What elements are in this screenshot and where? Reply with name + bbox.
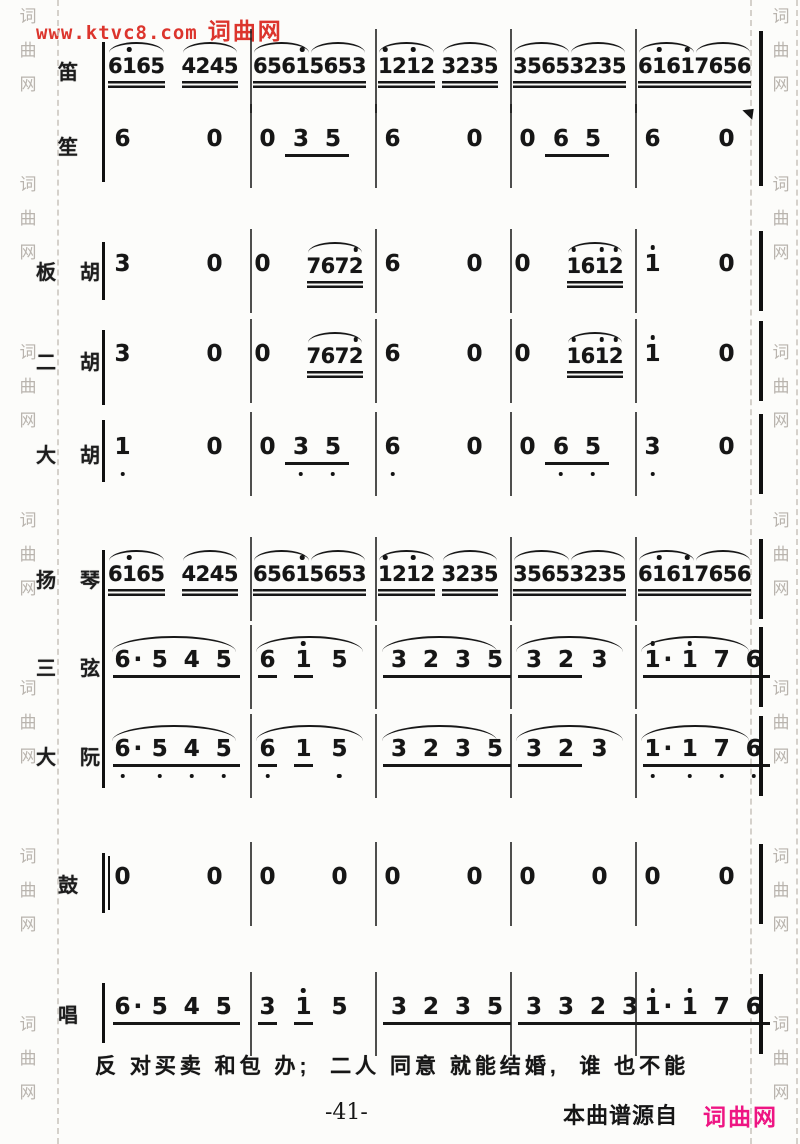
barline	[635, 229, 637, 313]
note-group: 5653	[310, 548, 367, 596]
score-row: 100356006530	[105, 423, 762, 485]
arc-spacer	[205, 423, 224, 434]
instrument-label-char: 琴	[80, 564, 100, 593]
note-digit: 5	[330, 994, 349, 1021]
measure: 00	[375, 853, 510, 915]
note-group: 35	[285, 423, 349, 465]
system-bracket-inner	[108, 856, 110, 910]
note-group: 0	[717, 423, 736, 461]
instrument-label: 唱	[36, 999, 100, 1028]
note-group: 0	[253, 330, 272, 368]
note-digit: 6	[281, 53, 295, 80]
note-digit: 0	[590, 864, 609, 891]
beam-underline	[383, 1022, 447, 1025]
system-bracket	[102, 550, 105, 788]
low-octave-dot	[688, 774, 693, 779]
note-digit: 1	[652, 53, 666, 80]
note-digit: 3	[590, 736, 609, 763]
note-digit: 3	[447, 736, 479, 763]
barline	[510, 625, 512, 709]
note-digit: 2	[584, 53, 598, 80]
slur-arc	[109, 550, 164, 561]
measure: 10	[635, 240, 762, 302]
instrument-label-char: 板	[36, 256, 56, 285]
cursor-artifact-icon	[741, 107, 753, 119]
note-group: 0	[643, 853, 662, 891]
beam-underline	[383, 675, 447, 678]
note-digit: 5	[144, 994, 176, 1021]
note-group: 3	[113, 240, 132, 278]
instrument-label: 笛	[36, 56, 100, 85]
note-group: 3565	[513, 548, 570, 596]
side-watermark-text: 词曲网	[15, 0, 41, 102]
beam-underline	[144, 675, 240, 678]
end-barline	[759, 106, 763, 186]
arc-spacer	[113, 115, 132, 126]
beam-underline	[113, 1022, 144, 1025]
high-octave-dot	[650, 641, 655, 646]
side-watermark-text: 词曲网	[15, 168, 41, 270]
barline	[635, 842, 637, 926]
note-digit: 2	[550, 647, 582, 674]
high-octave-dot	[614, 247, 619, 252]
arc-spacer	[518, 423, 537, 434]
note-digit: 3	[470, 561, 484, 588]
note-digit: 3	[285, 434, 317, 461]
note-group: 0	[717, 115, 736, 153]
measure: 035	[250, 423, 375, 485]
measure: 10	[105, 423, 250, 485]
arc-spacer	[383, 983, 447, 994]
score-row: 3007672600161210	[105, 240, 762, 302]
arc-spacer	[383, 423, 402, 434]
measure: 3235	[375, 636, 510, 698]
note-group: 3323	[518, 983, 646, 1025]
arc-spacer	[113, 983, 144, 994]
note-digit: 7	[307, 253, 321, 280]
instrument-label-char: 扬	[36, 564, 56, 593]
end-barline	[759, 321, 763, 401]
low-octave-dot	[265, 774, 270, 779]
note-digit: 5	[527, 561, 541, 588]
slur-arc	[311, 550, 366, 561]
note-group: 1	[643, 240, 662, 278]
beam-underline	[442, 589, 499, 596]
note-digit: 3	[447, 647, 479, 674]
note-digit: 6	[581, 343, 595, 370]
system-bracket	[102, 853, 105, 913]
note-digit: 1	[294, 647, 313, 674]
arc-spacer	[717, 115, 736, 126]
measure: 07672	[250, 240, 375, 302]
note-digit: 7	[695, 53, 709, 80]
note-group: 1	[113, 423, 132, 461]
high-octave-dot	[411, 47, 416, 52]
beam-underline	[518, 1022, 646, 1025]
note-digit: 5	[612, 561, 626, 588]
note-digit: 1	[595, 253, 609, 280]
measure: 3235	[375, 725, 510, 787]
note-digit: 5	[208, 994, 240, 1021]
barline	[250, 229, 252, 313]
measure: 61654245	[105, 548, 250, 610]
measure: 60	[375, 423, 510, 485]
low-octave-dot	[190, 774, 195, 779]
measure: 35653235	[510, 548, 635, 610]
arc-spacer	[590, 853, 609, 864]
note-digit: 4	[210, 53, 224, 80]
note-digit: 4	[176, 736, 208, 763]
note-digit: 1	[567, 343, 581, 370]
measure: 07672	[250, 330, 375, 392]
barline	[250, 714, 252, 798]
note-digit: 2	[420, 561, 434, 588]
note-digit: 5	[484, 561, 498, 588]
high-octave-dot	[650, 335, 655, 340]
beam-underline	[108, 589, 165, 596]
note-group: 65	[545, 423, 609, 465]
beam-underline	[643, 675, 674, 678]
note-digit: 6	[113, 994, 132, 1021]
note-digit: 7	[706, 736, 738, 763]
note-group: 1	[643, 330, 662, 368]
note-digit: 0	[717, 126, 736, 153]
note-group: 0	[513, 240, 532, 278]
note-digit: 3	[570, 53, 584, 80]
beam-underline	[307, 281, 364, 288]
side-watermark-text: 词曲网	[768, 672, 794, 774]
end-barline	[759, 844, 763, 924]
measure: 30	[105, 240, 250, 302]
note-digit: 5	[612, 53, 626, 80]
measure: 065	[510, 423, 635, 485]
note-digit: 5	[310, 561, 324, 588]
note-digit: ·	[662, 736, 674, 763]
note-digit: 1	[294, 736, 313, 763]
end-barline	[759, 414, 763, 494]
note-group: 0	[465, 240, 484, 278]
note-digit: 6	[666, 53, 680, 80]
note-digit: 2	[349, 253, 363, 280]
end-barline	[759, 539, 763, 619]
note-group: 6	[383, 240, 402, 278]
arc-spacer	[258, 853, 277, 864]
measure: 1·176	[635, 636, 762, 698]
note-digit: 0	[113, 864, 132, 891]
arc-spacer	[513, 330, 532, 341]
note-group: 6	[643, 115, 662, 153]
slur-arc	[311, 42, 366, 53]
note-digit: 2	[196, 561, 210, 588]
beam-underline	[307, 371, 364, 378]
note-digit: 6	[638, 561, 652, 588]
note-digit: ·	[132, 994, 144, 1021]
slur-arc	[514, 550, 569, 561]
note-group: 0	[205, 240, 224, 278]
side-watermark-text: 词曲网	[768, 168, 794, 270]
low-octave-dot	[158, 774, 163, 779]
arc-spacer	[205, 853, 224, 864]
measure: 61617656	[635, 548, 762, 610]
high-octave-dot	[688, 988, 693, 993]
barline	[635, 537, 637, 621]
note-group: 0	[205, 330, 224, 368]
note-digit: 0	[205, 251, 224, 278]
arc-spacer	[465, 330, 484, 341]
note-digit: 3	[442, 53, 456, 80]
low-octave-dot	[390, 472, 395, 477]
note-group: 4245	[182, 548, 239, 596]
note-group: 0	[518, 115, 537, 153]
low-octave-dot	[559, 472, 564, 477]
note-group: 0	[513, 330, 532, 368]
beam-underline	[643, 764, 674, 767]
barline	[250, 842, 252, 926]
beam-underline	[258, 675, 277, 678]
note-digit: 7	[335, 253, 349, 280]
note-digit: 0	[717, 434, 736, 461]
barline	[510, 229, 512, 313]
note-digit: 4	[182, 561, 196, 588]
measure: 00	[250, 853, 375, 915]
high-octave-dot	[301, 641, 306, 646]
arc-spacer	[113, 853, 132, 864]
note-digit: ·	[132, 647, 144, 674]
beam-underline	[182, 81, 239, 88]
measure: 00	[105, 853, 250, 915]
beam-underline	[570, 81, 627, 88]
note-digit: 1	[295, 53, 309, 80]
source-attribution-label: 本曲谱源自	[563, 1098, 678, 1130]
note-digit: 6	[737, 53, 751, 80]
slur-arc	[696, 550, 751, 561]
beam-underline	[113, 764, 144, 767]
instrument-label-char: 三	[36, 652, 56, 681]
high-octave-dot	[657, 555, 662, 560]
note-digit: 6	[113, 736, 132, 763]
note-group: 35	[285, 115, 349, 157]
instrument-label-char: 大	[36, 741, 56, 770]
arc-spacer	[518, 853, 537, 864]
note-digit: 0	[253, 341, 272, 368]
note-group: 0	[205, 853, 224, 891]
note-digit: 0	[205, 434, 224, 461]
note-digit: 2	[196, 53, 210, 80]
slur-arc	[696, 42, 751, 53]
note-group: 0	[330, 853, 349, 891]
note-group: 1612	[567, 240, 624, 288]
arc-spacer	[144, 983, 240, 994]
note-digit: 2	[582, 994, 614, 1021]
barline	[635, 29, 637, 113]
note-digit: 3	[285, 126, 317, 153]
low-octave-dot	[331, 472, 336, 477]
high-octave-dot	[383, 555, 388, 560]
measure: 60	[635, 115, 762, 177]
high-octave-dot	[688, 641, 693, 646]
note-group: 3	[258, 983, 277, 1025]
note-digit: 1	[595, 343, 609, 370]
note-digit: 6	[709, 561, 723, 588]
note-digit: 6	[738, 994, 770, 1021]
measure: 615	[250, 725, 375, 787]
measure: 6·545	[105, 636, 250, 698]
note-digit: 0	[465, 126, 484, 153]
measure: 615	[250, 636, 375, 698]
slur-arc	[514, 42, 569, 53]
beam-underline	[294, 764, 313, 767]
note-group: 6165	[108, 548, 165, 596]
note-digit: 2	[415, 736, 447, 763]
barline	[375, 537, 377, 621]
note-digit: 1	[294, 994, 313, 1021]
note-digit: 4	[176, 647, 208, 674]
note-digit: 5	[144, 736, 176, 763]
high-octave-dot	[614, 337, 619, 342]
note-group: 0	[205, 423, 224, 461]
beam-underline	[695, 81, 752, 88]
note-digit: 3	[383, 994, 415, 1021]
note-digit: 6	[383, 434, 402, 461]
note-digit: 6	[709, 53, 723, 80]
arc-spacer	[113, 240, 132, 251]
beam-underline	[113, 675, 144, 678]
note-digit: 6	[737, 561, 751, 588]
high-octave-dot	[571, 247, 576, 252]
barline	[510, 842, 512, 926]
note-group: 6561	[253, 548, 310, 596]
arc-spacer	[205, 330, 224, 341]
note-digit: 7	[706, 647, 738, 674]
barline	[635, 714, 637, 798]
beam-underline	[294, 675, 313, 678]
measure: 30	[105, 330, 250, 392]
note-group: 0	[465, 330, 484, 368]
low-octave-dot	[591, 472, 596, 477]
note-group: 0	[465, 115, 484, 153]
note-digit: 6	[108, 561, 122, 588]
note-digit: 3	[258, 994, 277, 1021]
measure: 60	[375, 330, 510, 392]
note-digit: 5	[330, 736, 349, 763]
note-group: 6	[383, 115, 402, 153]
high-octave-dot	[301, 988, 306, 993]
high-octave-dot	[127, 47, 132, 52]
low-octave-dot	[337, 774, 342, 779]
note-digit: 6	[258, 647, 277, 674]
beam-underline	[570, 589, 627, 596]
note-digit: 2	[584, 561, 598, 588]
note-group: 0	[717, 330, 736, 368]
note-digit: 6	[324, 53, 338, 80]
note-digit: 0	[330, 864, 349, 891]
slur-arc	[443, 42, 498, 53]
beam-underline	[567, 281, 624, 288]
measure: 60	[105, 115, 250, 177]
note-digit: 0	[465, 864, 484, 891]
note-digit: 6	[638, 53, 652, 80]
note-group: 0	[258, 423, 277, 461]
note-digit: 3	[518, 647, 550, 674]
arc-spacer	[643, 423, 662, 434]
arc-spacer	[383, 115, 402, 126]
note-digit: 1	[674, 736, 706, 763]
high-octave-dot	[411, 555, 416, 560]
arc-spacer	[383, 330, 402, 341]
note-group: 3235	[570, 548, 627, 596]
beam-underline	[182, 589, 239, 596]
note-digit: 5	[208, 647, 240, 674]
instrument-label: 鼓	[36, 869, 100, 898]
right-side-watermark-column: 词曲网词曲网词曲网词曲网词曲网词曲网词曲网	[768, 0, 794, 1144]
note-digit: 5	[208, 736, 240, 763]
note-digit: 5	[338, 53, 352, 80]
note-digit: 7	[706, 994, 738, 1021]
measure: 60	[375, 115, 510, 177]
note-digit: 0	[205, 126, 224, 153]
measure: 6·545	[105, 725, 250, 787]
note-digit: 5	[150, 53, 164, 80]
arc-spacer	[545, 115, 609, 126]
lyrics-line: 反 对买卖 和包 办; 二人 同意 就能结婚, 谁 也不能	[95, 1050, 785, 1080]
note-digit: 1	[406, 53, 420, 80]
note-digit: 0	[518, 126, 537, 153]
barline	[250, 104, 252, 188]
beam-underline	[285, 462, 349, 465]
barline	[375, 625, 377, 709]
note-group: 5653	[310, 40, 367, 88]
note-group: 0	[205, 115, 224, 153]
scanned-score-page: www.ktvc8.com词曲网 词曲网词曲网词曲网词曲网词曲网词曲网词曲网 词…	[0, 0, 800, 1144]
arc-spacer	[465, 240, 484, 251]
note-digit: 1	[674, 647, 706, 674]
note-digit: 5	[224, 53, 238, 80]
barline	[375, 842, 377, 926]
note-group: 1·	[643, 983, 674, 1025]
note-digit: 3	[518, 736, 550, 763]
slur-arc	[571, 550, 626, 561]
end-barline	[759, 716, 763, 796]
note-digit: 0	[253, 251, 272, 278]
note-digit: 6	[541, 561, 555, 588]
note-digit: 6	[136, 53, 150, 80]
instrument-label: 二胡	[36, 346, 100, 375]
barline	[510, 972, 512, 1056]
note-group: 5	[330, 983, 349, 1021]
note-digit: 2	[420, 53, 434, 80]
barline	[510, 412, 512, 496]
note-digit: 2	[550, 736, 582, 763]
arc-spacer	[717, 853, 736, 864]
note-digit: 2	[415, 647, 447, 674]
measure: 60	[375, 240, 510, 302]
note-digit: 5	[267, 561, 281, 588]
note-digit: 1	[122, 561, 136, 588]
note-digit: 0	[258, 434, 277, 461]
beam-underline	[545, 154, 609, 157]
arc-spacer	[253, 240, 272, 251]
instrument-label: 三弦	[36, 652, 100, 681]
note-digit: 6	[113, 126, 132, 153]
arc-spacer	[205, 240, 224, 251]
note-digit: 7	[335, 343, 349, 370]
high-octave-dot	[657, 47, 662, 52]
note-digit: 4	[182, 53, 196, 80]
high-octave-dot	[300, 47, 305, 52]
high-octave-dot	[600, 247, 605, 252]
high-octave-dot	[127, 555, 132, 560]
arc-spacer	[643, 983, 674, 994]
